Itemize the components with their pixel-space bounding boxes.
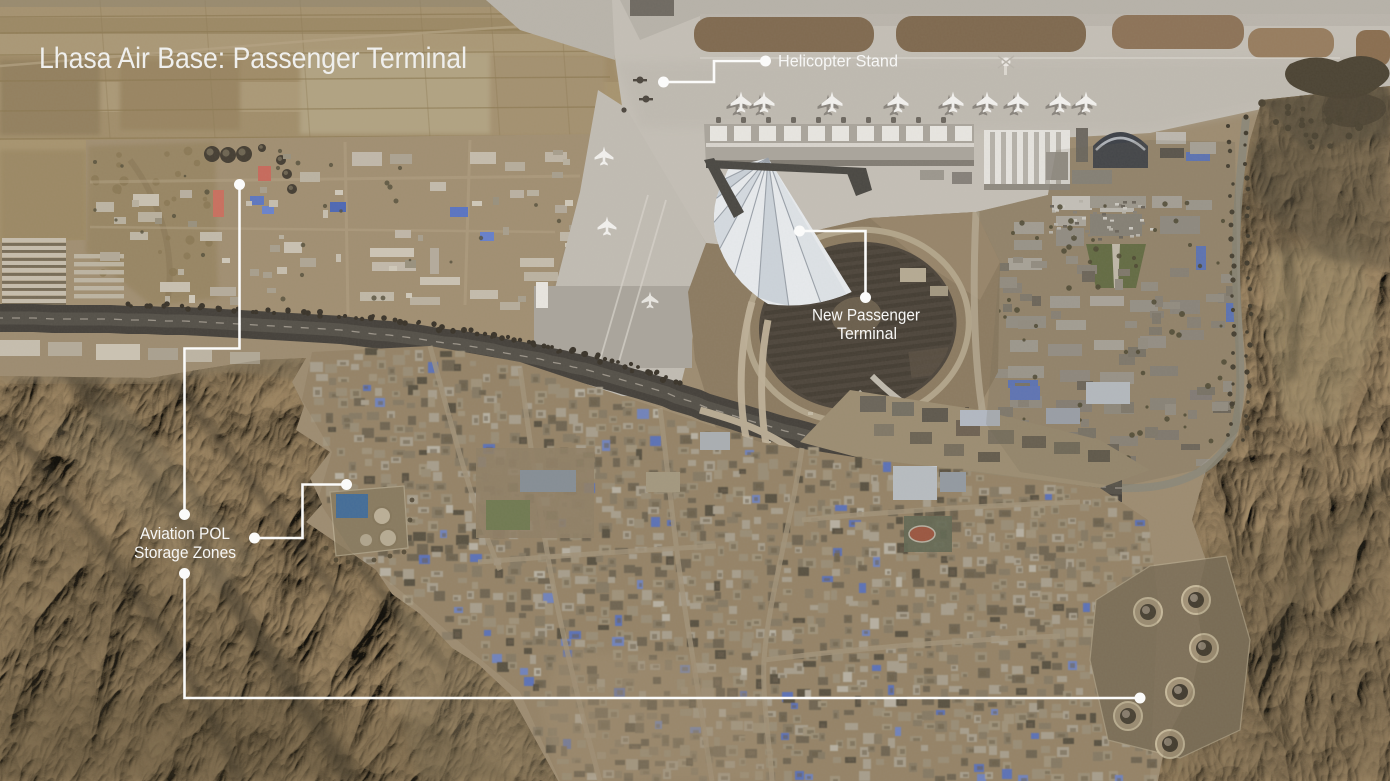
svg-text:Lhasa Air Base: Passenger Term: Lhasa Air Base: Passenger Terminal [39,42,467,75]
svg-text:Storage Zones: Storage Zones [134,544,236,562]
svg-text:Aviation POL: Aviation POL [140,525,230,543]
svg-text:Terminal: Terminal [837,325,897,343]
svg-text:Helicopter Stand: Helicopter Stand [778,53,898,71]
svg-text:New Passenger: New Passenger [812,307,920,325]
